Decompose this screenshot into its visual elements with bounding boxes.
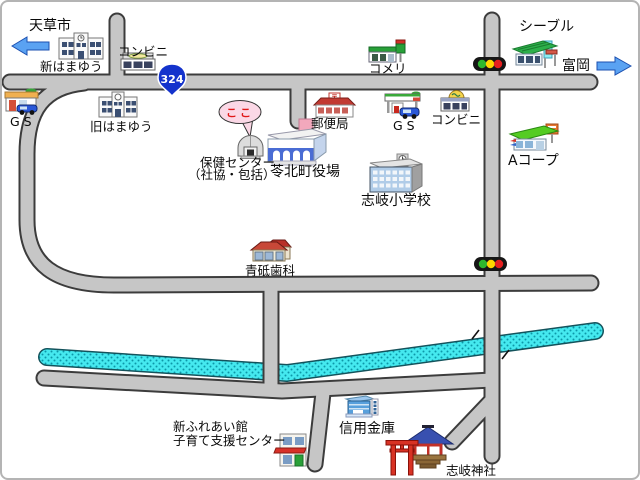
label-elementary: 志岐小学校	[361, 194, 431, 209]
gas-station-east-icon	[385, 92, 421, 119]
shin-hamayu-building-icon	[59, 33, 103, 59]
here-bubble: ここ	[219, 101, 261, 138]
label-dental: 青砥歯科	[245, 264, 295, 277]
label-gs-west: GS	[10, 115, 36, 128]
label-kyu-hamayu: 旧はまゆう	[90, 120, 153, 133]
post-office-icon: 〒	[314, 93, 355, 117]
label-gs-east: GS	[393, 119, 419, 132]
label-yakuba: 苓北町役場	[270, 165, 340, 180]
gas-station-west-icon	[5, 88, 38, 115]
label-shrine: 志岐神社	[446, 464, 496, 477]
route-324-badge-icon: 324	[158, 64, 186, 96]
dental-clinic-house-icon	[251, 240, 291, 261]
label-conbini-ne: コンビニ	[431, 113, 481, 126]
convenience-store-ne-icon	[441, 91, 469, 112]
shinkin-bank-icon	[346, 396, 378, 417]
torii-gate-icon	[386, 441, 418, 476]
komeri-store-icon	[369, 40, 405, 62]
label-fureai-line1: 新ふれあい館	[173, 420, 248, 433]
west-arrow-icon	[12, 37, 49, 55]
label-fureai-line2: 子育て支援センター	[173, 434, 286, 447]
label-post-office: 郵便局	[311, 117, 349, 130]
kyu-hamayu-building-icon	[99, 92, 137, 117]
label-komeri: コメリ	[369, 62, 407, 75]
river	[47, 331, 595, 373]
cieble-store-icon	[513, 41, 557, 68]
here-text: ここ	[226, 107, 254, 120]
label-amakusa: 天草市	[29, 19, 71, 34]
east-arrow-icon	[597, 57, 631, 75]
a-coop-store-icon	[510, 124, 558, 150]
label-bank: 信用金庫	[339, 422, 395, 437]
label-a-coop: Aコープ	[508, 154, 559, 169]
label-hoken-line2: （社協・包括）	[188, 168, 276, 181]
map-canvas: 324 ここ	[0, 0, 640, 480]
elementary-school-icon	[370, 154, 422, 192]
label-shin-hamayu: 新はまゆう	[40, 60, 103, 73]
traffic-light-north-icon	[473, 57, 506, 71]
label-tomioka: 富岡	[562, 59, 590, 74]
label-conbini-nw: コンビニ	[118, 45, 168, 58]
traffic-light-south-icon	[474, 257, 507, 271]
roads	[10, 20, 591, 464]
route-number: 324	[161, 73, 184, 86]
label-cieble: シーブル	[519, 20, 574, 35]
